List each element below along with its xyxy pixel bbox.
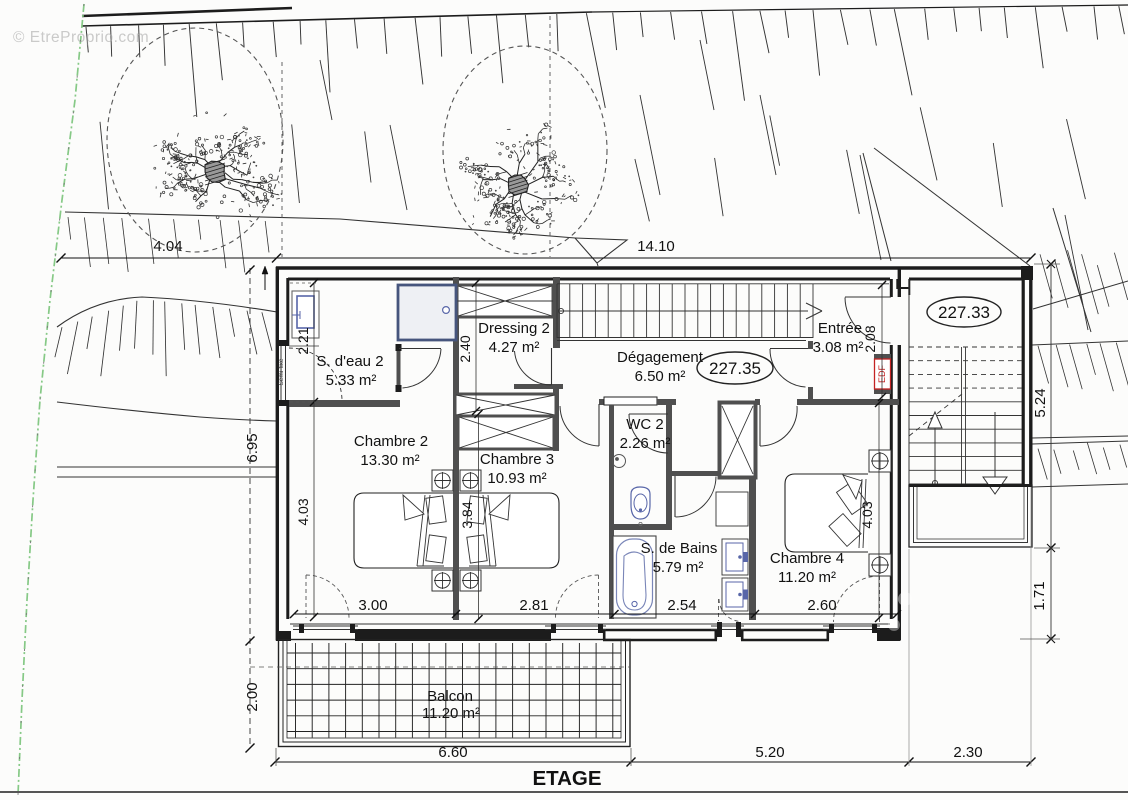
svg-text:2.21: 2.21 [295, 327, 311, 354]
svg-text:4.04: 4.04 [153, 238, 182, 255]
svg-text:3.00: 3.00 [358, 597, 387, 614]
svg-text:Entrée: Entrée [818, 320, 862, 337]
svg-text:Chambre 4: Chambre 4 [770, 550, 844, 567]
svg-text:2.54: 2.54 [667, 597, 696, 614]
svg-text:5.24: 5.24 [1032, 388, 1049, 417]
svg-text:© EtreProprio.com: © EtreProprio.com [13, 29, 149, 46]
svg-text:Balcon: Balcon [427, 688, 473, 705]
svg-text:227.35: 227.35 [709, 359, 761, 378]
svg-text:2.08: 2.08 [862, 325, 878, 352]
svg-text:Semi-fixe: Semi-fixe [278, 358, 285, 385]
svg-text:4.03: 4.03 [295, 498, 311, 525]
svg-text:Chambre 2: Chambre 2 [354, 433, 428, 450]
svg-text:2.60: 2.60 [807, 597, 836, 614]
svg-text:2.30: 2.30 [953, 744, 982, 761]
svg-text:5.79 m²: 5.79 m² [653, 559, 704, 576]
svg-text:4.27 m²: 4.27 m² [489, 339, 540, 356]
svg-text:ETAGE: ETAGE [532, 767, 601, 790]
svg-text:13.30 m²: 13.30 m² [360, 452, 419, 469]
svg-text:WC 2: WC 2 [626, 416, 664, 433]
svg-text:4.03: 4.03 [859, 501, 875, 528]
svg-text:Dégagement: Dégagement [617, 349, 704, 366]
svg-text:3.84: 3.84 [459, 501, 475, 528]
svg-text:2.40: 2.40 [457, 335, 473, 362]
svg-text:6.60: 6.60 [438, 744, 467, 761]
svg-text:2.00: 2.00 [244, 682, 261, 711]
svg-text:1.71: 1.71 [1031, 581, 1048, 610]
svg-text:14.10: 14.10 [637, 238, 675, 255]
svg-text:5.33 m²: 5.33 m² [326, 372, 377, 389]
svg-text:11.20 m²: 11.20 m² [778, 569, 836, 586]
svg-text:Chambre 3: Chambre 3 [480, 451, 554, 468]
svg-text:6.95: 6.95 [244, 433, 261, 462]
svg-text:11.20 m²: 11.20 m² [422, 705, 480, 722]
svg-text:3.08 m²: 3.08 m² [813, 339, 864, 356]
svg-text:5.20: 5.20 [755, 744, 784, 761]
svg-text:227.33: 227.33 [938, 303, 990, 322]
svg-text:S. de Bains: S. de Bains [641, 540, 718, 557]
svg-text:S. d'eau 2: S. d'eau 2 [316, 353, 383, 370]
svg-text:Dressing 2: Dressing 2 [478, 320, 550, 337]
svg-text:2.81: 2.81 [519, 597, 548, 614]
svg-text:10.93 m²: 10.93 m² [487, 470, 546, 487]
svg-text:2.26 m²: 2.26 m² [620, 435, 671, 452]
svg-text:6.50 m²: 6.50 m² [635, 368, 686, 385]
